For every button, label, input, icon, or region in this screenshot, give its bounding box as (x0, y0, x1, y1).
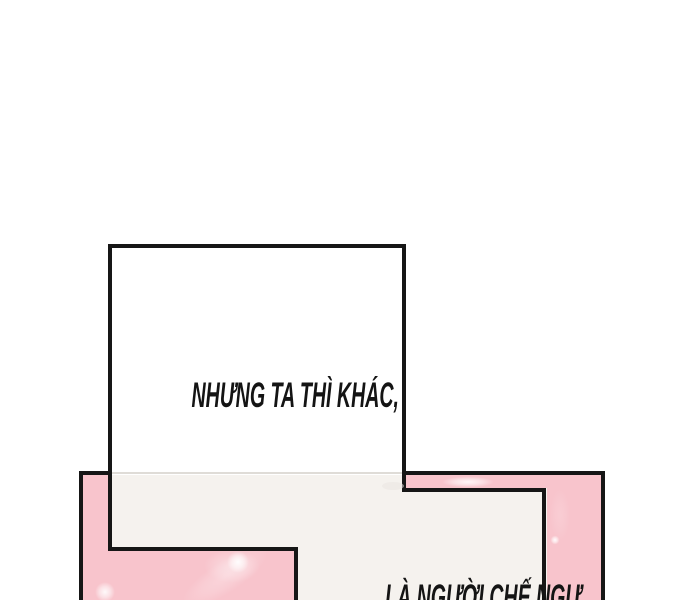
speech-bubble-top (108, 244, 406, 475)
faint-smudge (382, 482, 404, 490)
sparkle-dot-icon (227, 551, 249, 573)
dialogue-top: NHƯNG TA THÌ KHÁC, (110, 378, 408, 414)
dialogue-bottom-text: LÀ NGƯỜI CHẾ NGỰ (385, 580, 581, 600)
dialogue-top-text: NHƯNG TA THÌ KHÁC, (192, 378, 399, 413)
panel-artwork (0, 0, 690, 600)
sparkle-glow-icon (550, 489, 570, 541)
comic-page: NHƯNG TA THÌ KHÁC, LÀ NGƯỜI CHẾ NGỰ (0, 0, 690, 600)
dialogue-bottom: LÀ NGƯỜI CHẾ NGỰ (308, 580, 558, 600)
sparkle-streak-icon (442, 477, 494, 488)
